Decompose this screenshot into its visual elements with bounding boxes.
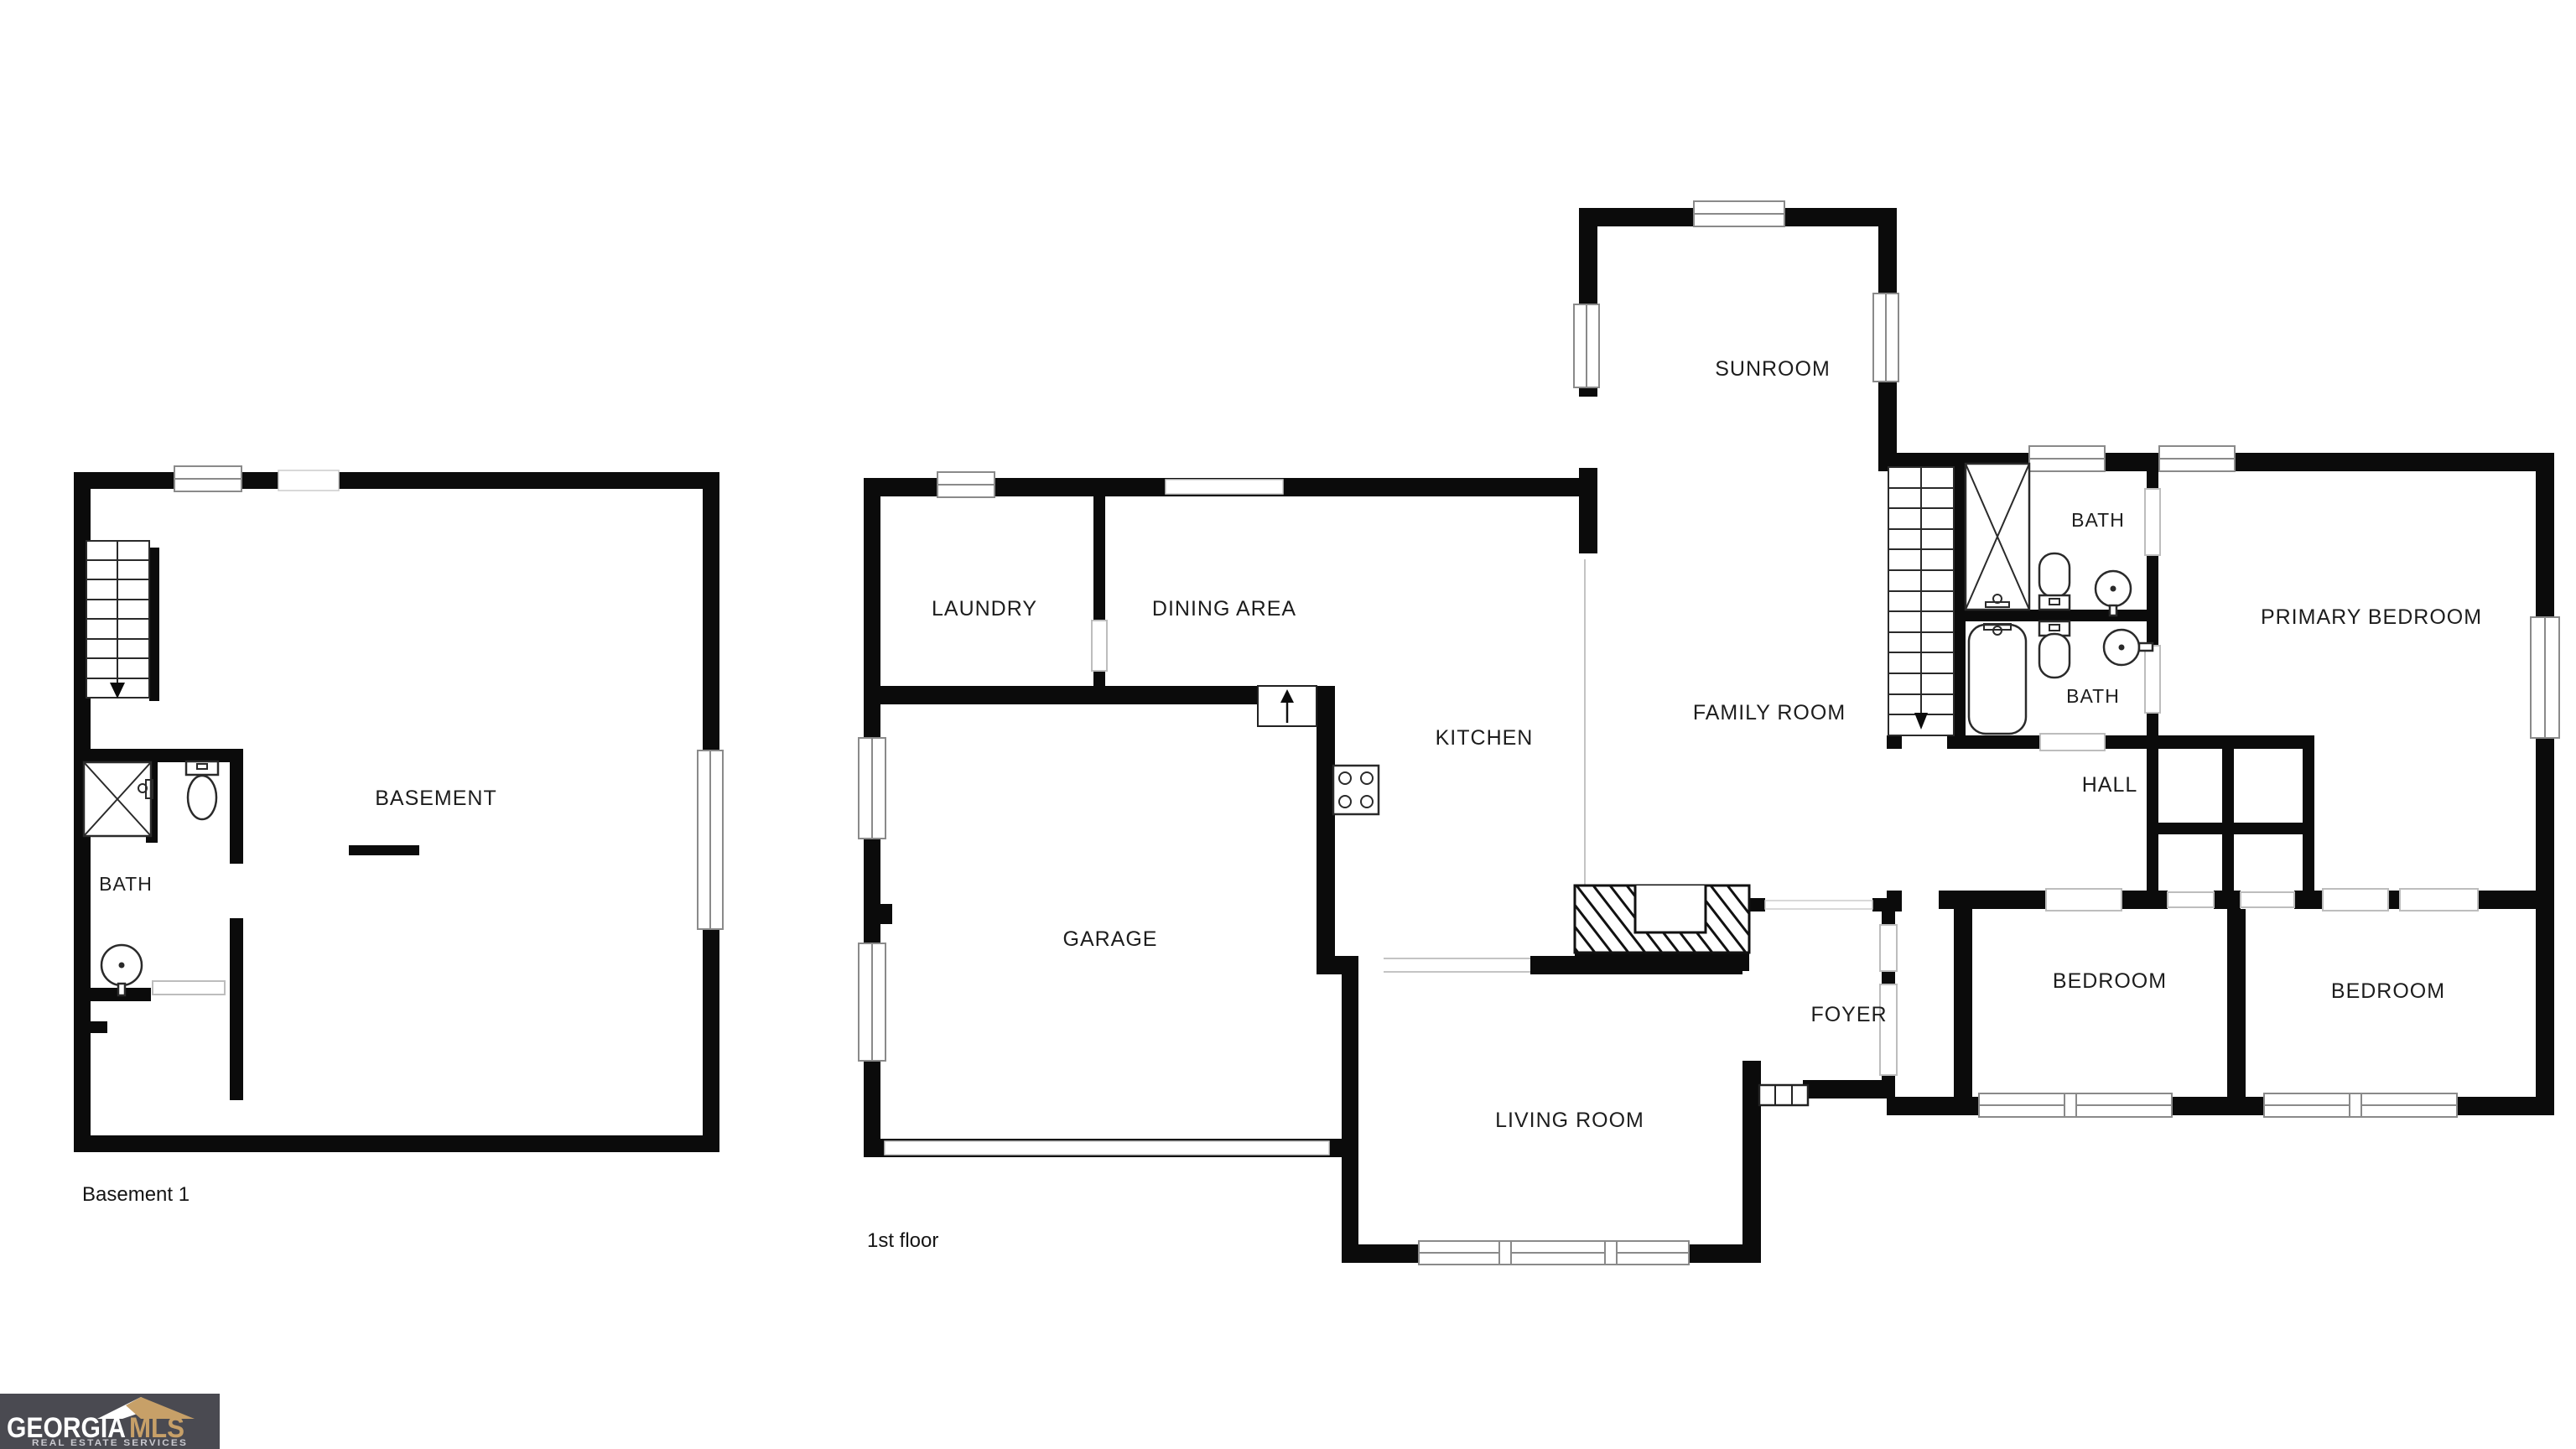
door-openings [1092,489,2478,1105]
shower-icon [84,762,153,836]
sink-icon [2096,571,2131,615]
toilet-icon [186,761,218,819]
room-label-garage: GARAGE [1063,927,1158,951]
room-label-family-room: FAMILY ROOM [1693,701,1846,724]
toilet-icon [2039,621,2070,678]
first-floor-caption: 1st floor [867,1229,938,1252]
room-label-bath-lower: BATH [2066,685,2120,707]
toilet-icon [2039,553,2070,610]
first-floor-plan: SUNROOM LAUNDRY DINING AREA KITCHEN FAMI… [859,201,2559,1265]
basement-windows [174,466,723,929]
bathtub-icon [1969,624,2026,734]
room-label-foyer: FOYER [1810,1003,1887,1026]
room-label-bedroom-left: BEDROOM [2053,969,2167,993]
room-label-primary-bedroom: PRIMARY BEDROOM [2261,605,2482,629]
window-icon [1166,480,1283,494]
room-label-hall: HALL [2082,773,2138,797]
room-label-living-room: LIVING ROOM [1495,1109,1644,1132]
front-door-icon [1759,1085,1808,1105]
room-label-kitchen: KITCHEN [1436,726,1534,750]
garage-door [885,1141,1329,1155]
bath-lower-fixtures [1969,621,2153,734]
first-floor-windows [859,201,2559,1265]
shower-icon [1966,464,2029,610]
room-label-bedroom-right: BEDROOM [2331,979,2445,1003]
pocket-door [153,981,225,995]
entry-step [1258,686,1317,726]
bath-upper-fixtures [1966,464,2131,615]
room-label-basement-bath: BATH [99,873,153,895]
fireplace-icon [1526,885,1779,953]
basement-caption: Basement 1 [82,1183,190,1206]
wall-opening [278,470,339,491]
logo-tagline: REAL ESTATE SERVICES [32,1438,188,1448]
basement-walls [74,472,719,1152]
room-label-basement: BASEMENT [375,787,497,810]
room-label-bath-upper: BATH [2071,509,2125,531]
basement-plan: BASEMENT BATH Basement 1 [74,466,723,1206]
stairs-first-floor [1888,467,1954,735]
floorplan-sheet: BASEMENT BATH Basement 1 [0,0,2576,1449]
open-boundaries [1384,559,1585,972]
room-label-laundry: LAUNDRY [932,597,1037,621]
stairs-basement [86,541,149,699]
room-label-sunroom: SUNROOM [1715,357,1831,381]
room-label-dining-area: DINING AREA [1152,597,1296,621]
kitchen-stove-icon [1333,766,1379,814]
georgia-mls-logo: GEORGIA MLS REAL ESTATE SERVICES [0,1394,220,1449]
